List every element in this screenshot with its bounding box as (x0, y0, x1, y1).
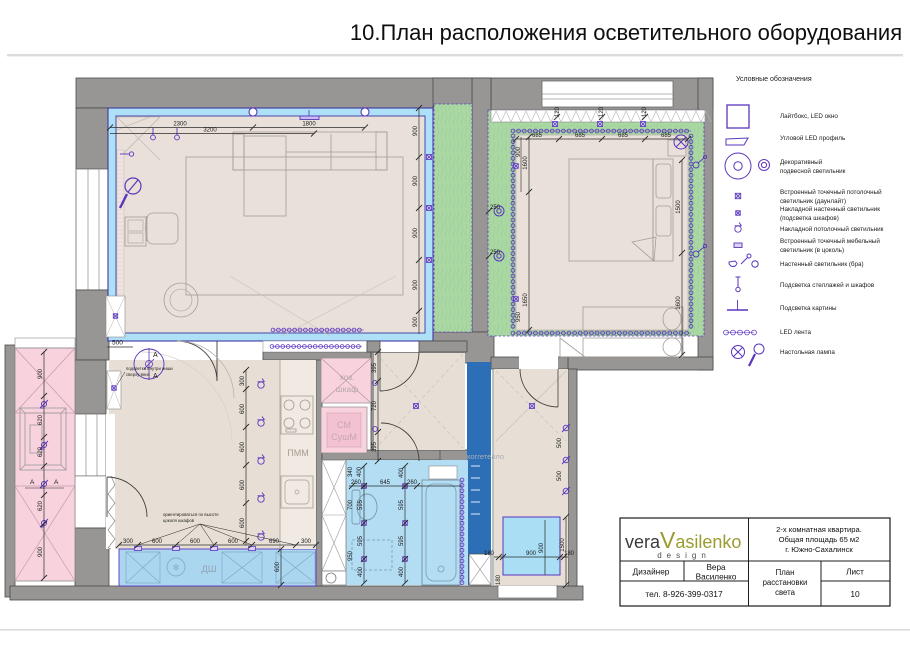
svg-text:План: План (776, 568, 795, 577)
svg-text:света: света (775, 588, 796, 597)
svg-text:Лайтбокс, LED окно: Лайтбокс, LED окно (780, 112, 838, 120)
svg-text:900: 900 (413, 316, 419, 327)
svg-text:685: 685 (661, 133, 672, 139)
svg-text:500: 500 (112, 340, 123, 347)
svg-text:595: 595 (358, 535, 364, 546)
svg-text:300: 300 (123, 539, 134, 545)
svg-text:900: 900 (413, 227, 419, 238)
svg-text:тел. 8-926-399-0317: тел. 8-926-399-0317 (645, 589, 723, 599)
svg-text:595: 595 (399, 535, 405, 546)
svg-text:ДШ: ДШ (201, 564, 216, 575)
svg-text:900: 900 (413, 175, 419, 186)
svg-text:Накладной настенный светильник: Накладной настенный светильник (780, 205, 880, 213)
svg-text:600: 600 (240, 441, 246, 452)
svg-text:620: 620 (38, 414, 44, 425)
svg-text:расстановки: расстановки (763, 578, 808, 587)
svg-text:ПММ: ПММ (287, 448, 308, 458)
svg-text:685: 685 (575, 133, 586, 139)
svg-text:А: А (153, 373, 158, 380)
svg-text:300: 300 (240, 375, 246, 386)
svg-text:600: 600 (240, 403, 246, 414)
svg-text:Василенко: Василенко (696, 573, 737, 582)
svg-text:685: 685 (532, 133, 543, 139)
svg-text:180: 180 (496, 574, 502, 585)
svg-text:Подсветка стеллажей и шкафов: Подсветка стеллажей и шкафов (780, 281, 875, 289)
svg-text:400: 400 (399, 566, 405, 577)
svg-text:400: 400 (399, 467, 405, 478)
svg-text:10.План расположения осветител: 10.План расположения осветительного обор… (350, 20, 902, 45)
svg-text:645: 645 (380, 480, 391, 486)
svg-text:395: 395 (372, 362, 378, 373)
svg-text:595: 595 (399, 499, 405, 510)
svg-text:690: 690 (269, 539, 280, 545)
svg-text:700: 700 (348, 499, 354, 510)
svg-text:Настольная лампа: Настольная лампа (780, 349, 835, 356)
svg-text:1600: 1600 (676, 296, 682, 310)
svg-text:600: 600 (228, 539, 239, 545)
svg-text:900: 900 (526, 551, 537, 557)
svg-text:шкаф: шкаф (336, 384, 358, 394)
svg-text:685: 685 (618, 133, 629, 139)
svg-text:950: 950 (348, 550, 354, 561)
svg-text:900: 900 (413, 125, 419, 136)
svg-text:Вера: Вера (706, 563, 726, 572)
svg-text:А: А (153, 352, 158, 359)
svg-text:ориентироваться по высоте: ориентироваться по высоте (163, 512, 219, 517)
svg-text:620: 620 (38, 500, 44, 511)
svg-text:Лист: Лист (846, 568, 864, 577)
svg-text:светильник (даунлайт): светильник (даунлайт) (780, 197, 846, 205)
svg-text:Накладной потолочный светильни: Накладной потолочный светильник (780, 225, 884, 233)
svg-text:340: 340 (348, 466, 354, 477)
svg-text:г. Южно-Сахалинск: г. Южно-Сахалинск (785, 545, 853, 554)
svg-text:Встроенный точечный мебельный: Встроенный точечный мебельный (780, 237, 880, 245)
svg-text:620: 620 (38, 446, 44, 457)
svg-text:600: 600 (190, 539, 201, 545)
svg-text:260: 260 (351, 480, 362, 486)
svg-text:Условные обозначения: Условные обозначения (736, 75, 812, 83)
svg-text:Настенный светильник (бра): Настенный светильник (бра) (780, 260, 864, 268)
svg-text:подсветка внутри ниши: подсветка внутри ниши (126, 366, 173, 371)
svg-text:1600: 1600 (523, 156, 529, 170)
svg-text:Дизайнер: Дизайнер (633, 568, 670, 577)
svg-text:Встроенный точечный потолочный: Встроенный точечный потолочный (780, 188, 882, 196)
svg-text:подвесной светильник: подвесной светильник (780, 167, 846, 175)
svg-text:900: 900 (38, 368, 44, 379)
svg-text:395: 395 (372, 441, 378, 452)
svg-text:1650: 1650 (523, 293, 529, 307)
svg-text:1500: 1500 (560, 538, 566, 552)
svg-text:720: 720 (372, 400, 378, 411)
svg-text:коггетелло: коггетелло (467, 452, 504, 461)
svg-text:500: 500 (557, 470, 563, 481)
svg-text:600: 600 (240, 517, 246, 528)
svg-text:цоколя шкафов: цоколя шкафов (163, 518, 195, 523)
svg-text:Подсветка картины: Подсветка картины (780, 305, 837, 312)
svg-text:950: 950 (516, 311, 522, 322)
svg-text:design: design (657, 551, 711, 560)
svg-text:❄: ❄ (172, 563, 180, 573)
svg-text:2300: 2300 (173, 122, 187, 128)
svg-text:300: 300 (301, 539, 312, 545)
svg-text:СушМ: СушМ (331, 432, 357, 442)
svg-text:хоз.: хоз. (339, 372, 354, 382)
svg-text:Общая площадь 65 м2: Общая площадь 65 м2 (779, 535, 860, 544)
svg-text:Угловой LED профиль: Угловой LED профиль (780, 134, 846, 142)
svg-text:СМ: СМ (337, 420, 351, 430)
svg-text:Декоративный: Декоративный (780, 158, 823, 166)
svg-text:3200: 3200 (203, 128, 217, 134)
svg-text:2-х комнатная квартира.: 2-х комнатная квартира. (776, 525, 862, 534)
svg-text:сверху вниз: сверху вниз (126, 372, 150, 377)
svg-text:500: 500 (557, 437, 563, 448)
svg-text:10: 10 (850, 589, 860, 599)
svg-text:595: 595 (358, 499, 364, 510)
svg-text:А: А (30, 479, 35, 486)
svg-text:А: А (54, 479, 59, 486)
svg-text:900: 900 (413, 279, 419, 290)
svg-text:светильник (в цоколь): светильник (в цоколь) (780, 247, 844, 254)
svg-text:LED лента: LED лента (780, 329, 811, 336)
svg-text:400: 400 (357, 466, 363, 477)
svg-text:1500: 1500 (676, 200, 682, 214)
svg-text:600: 600 (275, 561, 281, 572)
svg-text:180: 180 (484, 551, 495, 557)
svg-text:(подсветка шкафов): (подсветка шкафов) (780, 215, 839, 222)
svg-text:1800: 1800 (302, 122, 316, 128)
svg-text:400: 400 (358, 566, 364, 577)
svg-text:900: 900 (539, 542, 545, 553)
svg-text:260: 260 (407, 480, 418, 486)
svg-text:600: 600 (240, 479, 246, 490)
svg-text:900: 900 (38, 546, 44, 557)
